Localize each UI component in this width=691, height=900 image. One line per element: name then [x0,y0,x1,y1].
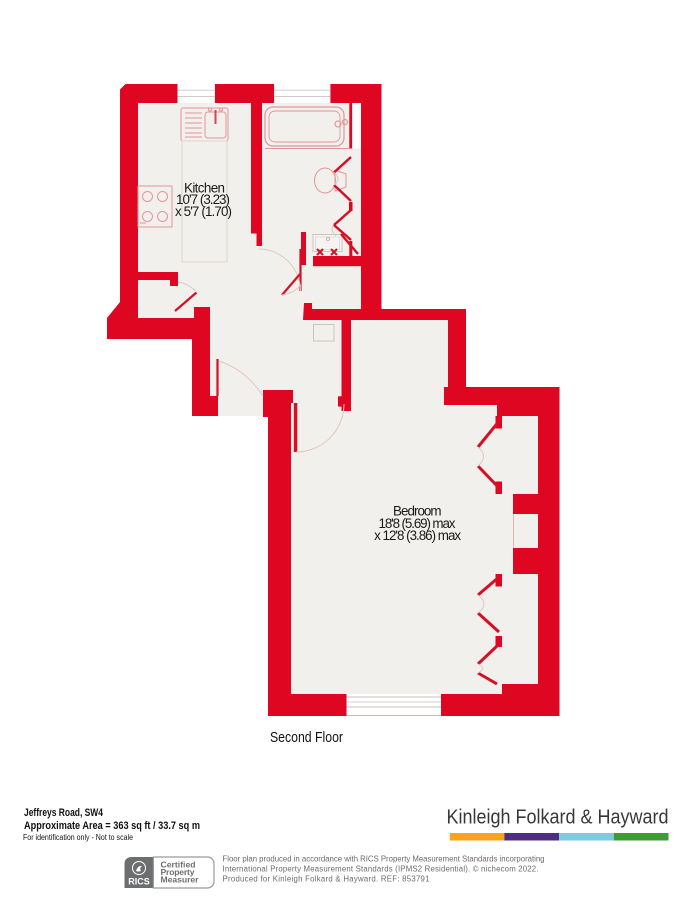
svg-text:Second Floor: Second Floor [270,729,343,746]
svg-text:Kinleigh Folkard & Hayward: Kinleigh Folkard & Hayward [447,806,669,829]
svg-text:Produced for Kinleigh Folkard: Produced for Kinleigh Folkard & Hayward.… [223,874,430,883]
svg-text:International Property Measure: International Property Measurement Stand… [223,864,539,873]
svg-text:Floor plan produced in accorda: Floor plan produced in accordance with R… [223,854,545,863]
svg-text:For identification only - Not: For identification only - Not to scale [23,832,133,842]
svg-text:Measurer: Measurer [161,875,200,885]
svg-text:RICS: RICS [128,877,150,888]
svg-text:x 12'8 (3.86) max: x 12'8 (3.86) max [374,528,461,543]
svg-text:Approximate Area = 363 sq ft /: Approximate Area = 363 sq ft / 33.7 sq m [24,820,200,832]
svg-text:Jeffreys Road, SW4: Jeffreys Road, SW4 [24,807,103,819]
svg-text:x 5'7 (1.70): x 5'7 (1.70) [175,204,232,219]
